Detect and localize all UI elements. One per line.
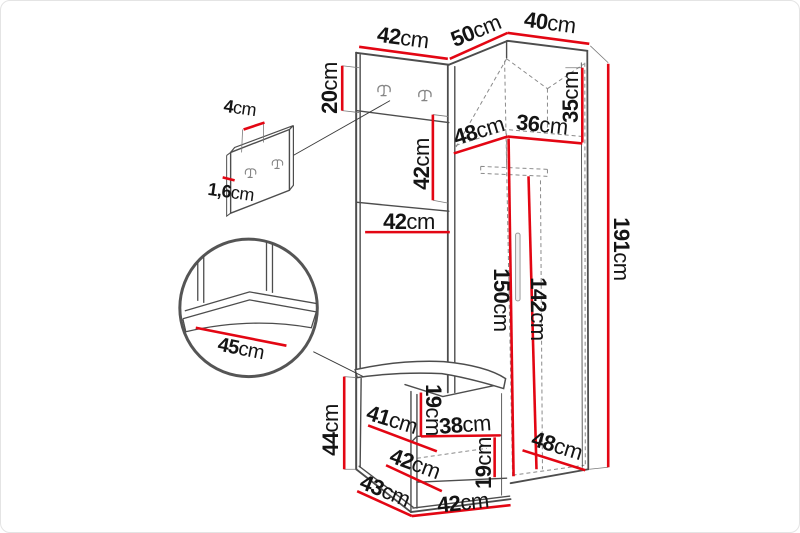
dim-height-interior-right: 142cm [527, 277, 549, 340]
dim-height-total: 191cm [610, 217, 632, 280]
dim-height-shoe-gap-lower: 19cm [473, 437, 495, 489]
dim-width-shoe-shelf: 38cm [438, 412, 491, 438]
dim-width-bench-bottom: 42cm [436, 489, 490, 516]
coat-hook-icon [378, 85, 390, 95]
furniture-dimension-diagram: 42cm 50cm 40cm 20cm 42cm 48cm 36cm 35cm … [0, 0, 800, 533]
dim-height-bench: 44cm [320, 404, 342, 456]
dim-width-panel-mid: 42cm [383, 211, 435, 233]
dim-height-interior-left: 150cm [490, 268, 512, 331]
dim-height-top-compartment: 35cm [560, 71, 582, 123]
coat-hook-icon [419, 90, 431, 100]
wardrobe-door-handle [516, 233, 520, 301]
dim-height-panel-upper: 42cm [411, 138, 433, 190]
dim-depth-hook-panel: 4cm [223, 97, 258, 119]
dim-height-hook-strip: 20cm [319, 62, 341, 114]
